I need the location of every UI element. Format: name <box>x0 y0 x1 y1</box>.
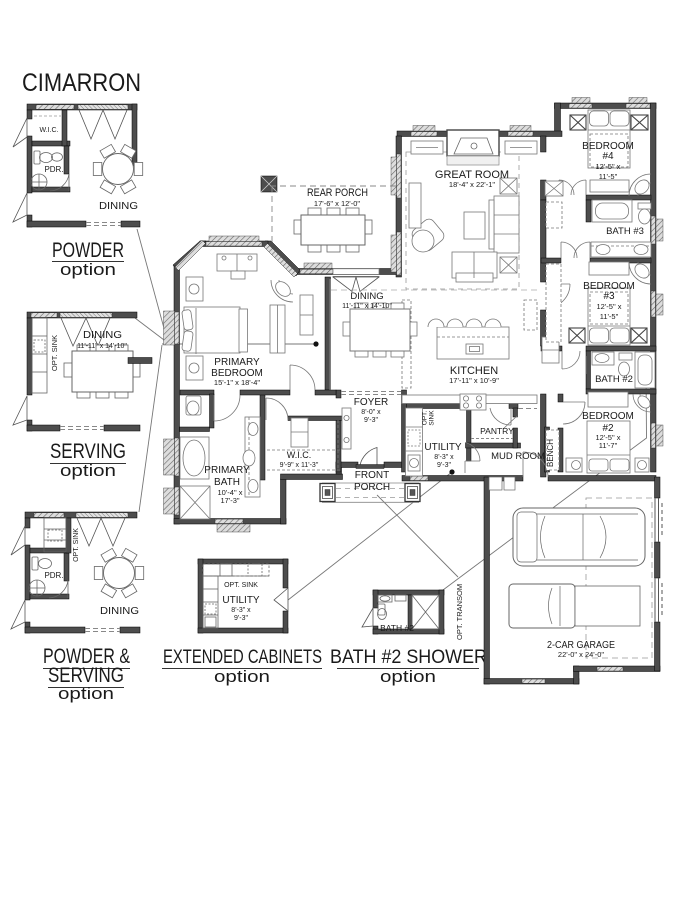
svg-text:PRIMARY: PRIMARY <box>204 465 250 476</box>
svg-text:8'-3" x: 8'-3" x <box>434 454 454 461</box>
svg-text:9'-3": 9'-3" <box>364 417 378 424</box>
svg-text:OPT. TRANSOM: OPT. TRANSOM <box>455 584 464 640</box>
svg-text:BATH #2: BATH #2 <box>380 623 414 633</box>
svg-text:SINK: SINK <box>429 410 436 426</box>
svg-text:#3: #3 <box>603 291 615 302</box>
svg-text:BENCH: BENCH <box>546 439 555 467</box>
svg-text:PORCH: PORCH <box>354 482 390 493</box>
svg-text:11'-5": 11'-5" <box>600 312 619 321</box>
svg-text:18'-4" x 22'-1": 18'-4" x 22'-1" <box>449 180 495 189</box>
svg-text:OPT. SINK: OPT. SINK <box>50 335 59 371</box>
svg-text:DINING: DINING <box>350 291 383 302</box>
svg-text:BATH #3: BATH #3 <box>606 226 644 237</box>
svg-text:15'-1" x 18'-4": 15'-1" x 18'-4" <box>214 378 260 387</box>
svg-text:PDR.: PDR. <box>44 571 63 580</box>
svg-text:CIMARRON: CIMARRON <box>22 69 141 97</box>
svg-text:12'-5" x: 12'-5" x <box>596 162 621 171</box>
svg-text:MUD ROOM: MUD ROOM <box>491 451 545 462</box>
svg-text:FRONT: FRONT <box>355 470 389 481</box>
svg-text:EXTENDED CABINETS: EXTENDED CABINETS <box>163 647 322 668</box>
svg-text:8'-3" x: 8'-3" x <box>231 607 251 614</box>
svg-text:DINING: DINING <box>99 201 138 212</box>
svg-text:POWDER: POWDER <box>52 239 124 262</box>
svg-text:12'-5" x: 12'-5" x <box>597 302 622 311</box>
svg-text:option: option <box>380 667 436 686</box>
svg-text:REAR PORCH: REAR PORCH <box>307 187 368 199</box>
svg-text:#4: #4 <box>602 151 614 162</box>
svg-text:PDR.: PDR. <box>44 165 63 174</box>
svg-text:option: option <box>60 461 116 480</box>
svg-text:BEDROOM: BEDROOM <box>582 411 634 422</box>
svg-text:SERVING: SERVING <box>50 440 126 463</box>
svg-text:9'-3": 9'-3" <box>437 462 451 469</box>
svg-text:8'-0" x: 8'-0" x <box>361 409 381 416</box>
svg-text:PRIMARY: PRIMARY <box>214 357 260 368</box>
svg-text:17'-3": 17'-3" <box>220 496 239 505</box>
svg-text:9'-3": 9'-3" <box>234 615 248 622</box>
svg-text:11'-11" x 14'-10": 11'-11" x 14'-10" <box>77 343 127 350</box>
svg-text:PANTRY: PANTRY <box>480 426 514 436</box>
svg-text:OPT.: OPT. <box>422 411 429 426</box>
svg-text:OPT. SINK: OPT. SINK <box>73 528 80 562</box>
svg-text:option: option <box>60 260 116 279</box>
svg-text:option: option <box>58 684 114 703</box>
svg-text:11'-5": 11'-5" <box>599 172 618 181</box>
svg-text:UTILITY: UTILITY <box>222 595 260 606</box>
svg-text:BATH #2: BATH #2 <box>595 374 633 385</box>
svg-text:FOYER: FOYER <box>354 397 388 408</box>
svg-text:17'-6" x 12'-0": 17'-6" x 12'-0" <box>314 199 360 208</box>
svg-text:OPT. SINK: OPT. SINK <box>224 582 258 589</box>
svg-text:11'-7": 11'-7" <box>599 441 618 450</box>
svg-text:DINING: DINING <box>100 606 139 617</box>
svg-text:BATH #2 SHOWER: BATH #2 SHOWER <box>330 647 487 668</box>
svg-text:W.I.C.: W.I.C. <box>39 127 58 134</box>
svg-text:17'-11" x 10'-9": 17'-11" x 10'-9" <box>449 376 499 385</box>
svg-text:DINING: DINING <box>83 330 122 341</box>
svg-text:W.I.C.: W.I.C. <box>287 450 312 460</box>
svg-text:option: option <box>214 667 270 686</box>
svg-text:11'-11" x 14'-10": 11'-11" x 14'-10" <box>342 303 392 310</box>
svg-text:UTILITY: UTILITY <box>424 442 462 453</box>
svg-text:9'-9" x 11'-3": 9'-9" x 11'-3" <box>280 462 319 469</box>
svg-text:22'-0" x 24'-0": 22'-0" x 24'-0" <box>558 650 604 659</box>
svg-text:BATH: BATH <box>214 477 240 488</box>
